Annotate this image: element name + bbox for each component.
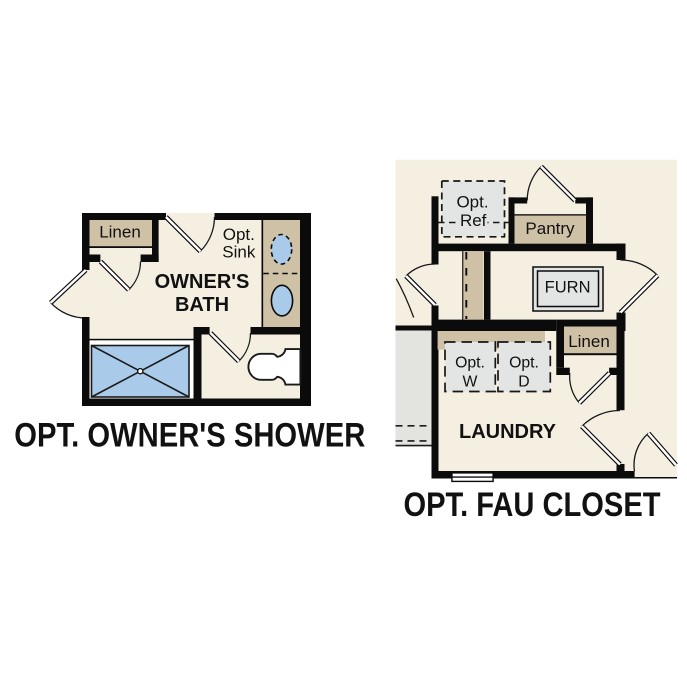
svg-text:OPT. FAU CLOSET: OPT. FAU CLOSET — [404, 486, 661, 524]
svg-text:LAUNDRY: LAUNDRY — [459, 421, 557, 443]
svg-text:Sink: Sink — [222, 243, 256, 262]
svg-text:FURN: FURN — [545, 278, 591, 296]
svg-text:Linen: Linen — [99, 223, 141, 242]
svg-text:Linen: Linen — [568, 332, 610, 351]
svg-text:Opt.: Opt. — [509, 355, 539, 372]
svg-text:Opt.: Opt. — [455, 355, 485, 372]
svg-text:Opt.: Opt. — [223, 225, 255, 244]
svg-text:OWNER'S: OWNER'S — [155, 271, 250, 293]
svg-text:W: W — [463, 373, 478, 390]
svg-text:Pantry: Pantry — [525, 219, 575, 238]
svg-text:Opt.: Opt. — [456, 193, 488, 212]
svg-text:D: D — [518, 373, 529, 390]
svg-text:OPT. OWNER'S SHOWER: OPT. OWNER'S SHOWER — [14, 417, 365, 455]
svg-text:Ref: Ref — [460, 211, 487, 230]
svg-text:BATH: BATH — [175, 294, 229, 316]
